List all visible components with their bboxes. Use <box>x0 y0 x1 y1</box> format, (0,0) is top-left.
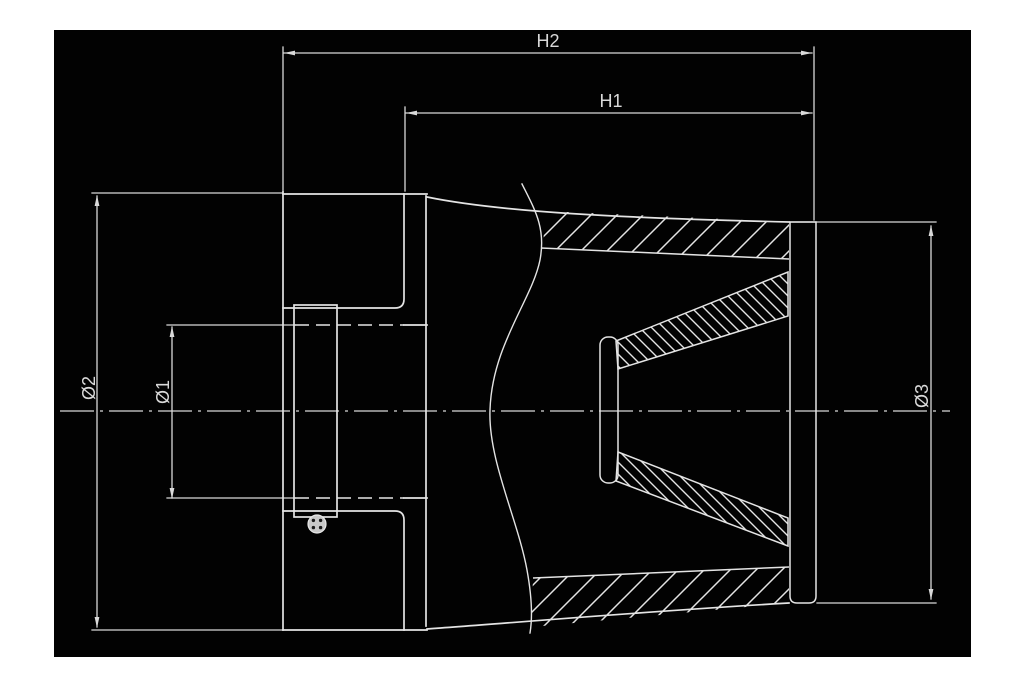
diameter2-label: Ø2 <box>79 376 99 400</box>
clamp-screw-head <box>308 515 326 533</box>
screw-dot <box>312 519 315 522</box>
filter-cross-section-drawing: H2 H1 Ø2 Ø1 Ø3 <box>0 0 1024 696</box>
screw-dot <box>319 526 322 529</box>
drawing-canvas <box>54 30 971 657</box>
screw-dot <box>319 519 322 522</box>
diameter1-label: Ø1 <box>153 380 173 404</box>
screw-dot <box>312 526 315 529</box>
diameter3-label: Ø3 <box>912 384 932 408</box>
page: H2 H1 Ø2 Ø1 Ø3 <box>0 0 1024 696</box>
clamp-screw <box>308 515 326 533</box>
h1-label: H1 <box>599 91 622 111</box>
h2-label: H2 <box>536 31 559 51</box>
